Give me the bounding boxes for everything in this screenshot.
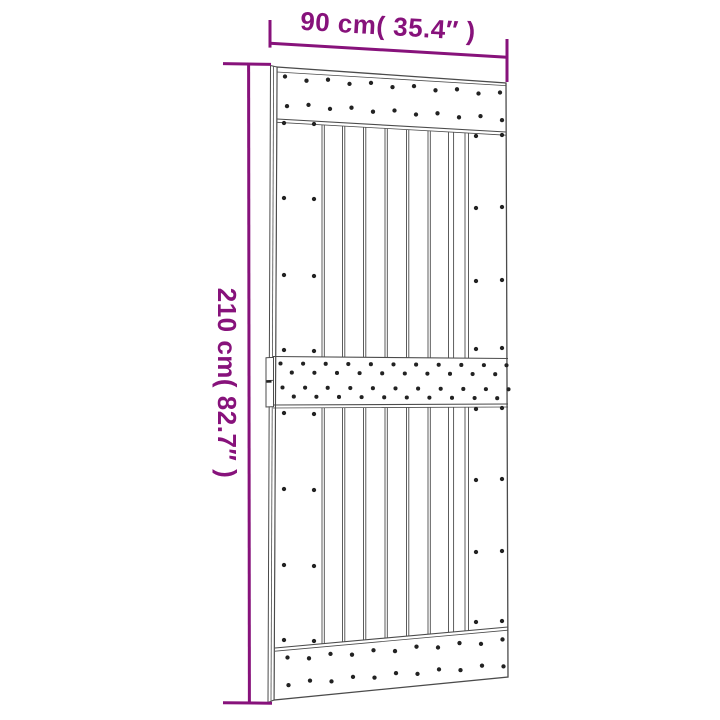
height-dimension-label: 210 cm( 82.7″ ): [214, 288, 240, 479]
door-outline: [268, 66, 508, 703]
product-dimension-diagram: 90 cm( 35.4″ ) 210 cm( 82.7″ ): [0, 0, 720, 720]
barn-door-drawing: [0, 0, 720, 720]
